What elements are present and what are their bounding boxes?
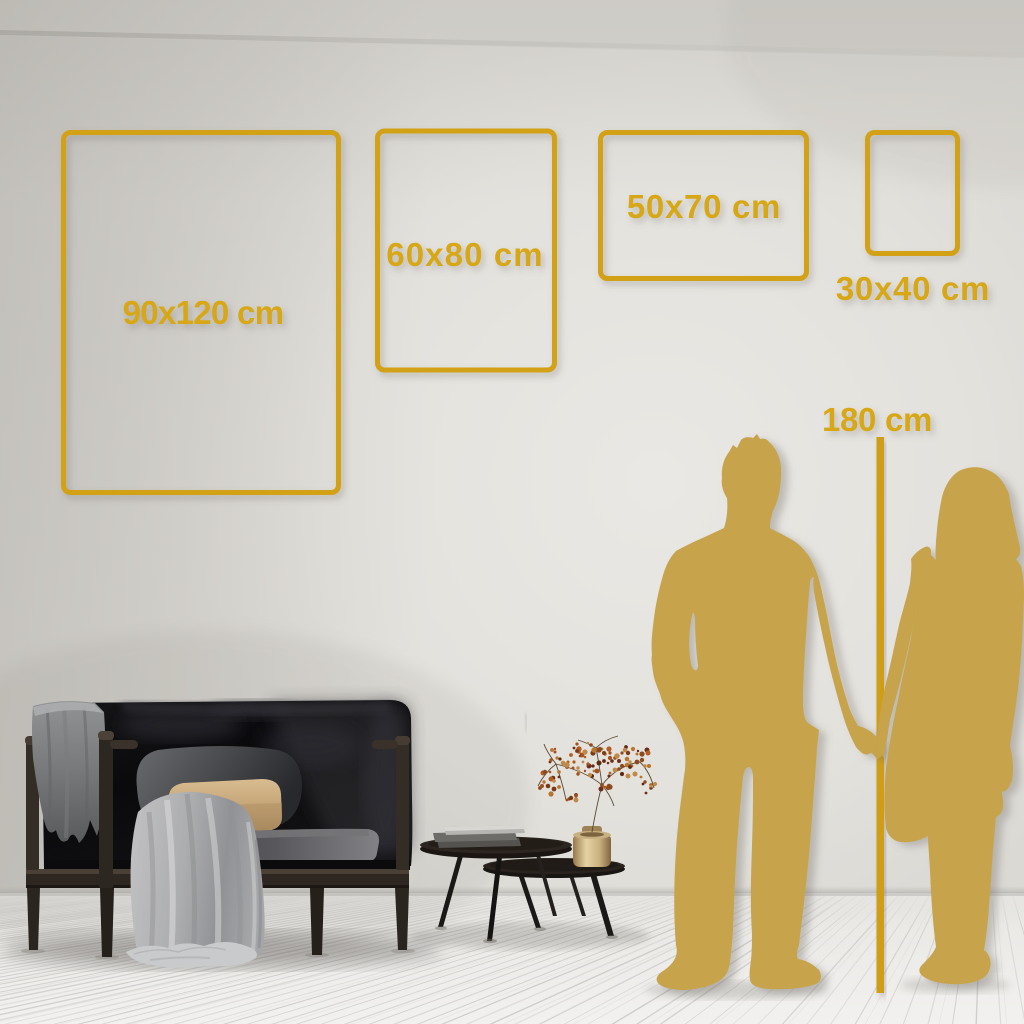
svg-text:30x40 cm: 30x40 cm [836,270,990,307]
svg-text:90x120 cm: 90x120 cm [123,294,284,331]
svg-text:60x80 cm: 60x80 cm [386,236,543,273]
svg-text:180 cm: 180 cm [822,401,932,438]
svg-text:50x70 cm: 50x70 cm [627,188,781,225]
